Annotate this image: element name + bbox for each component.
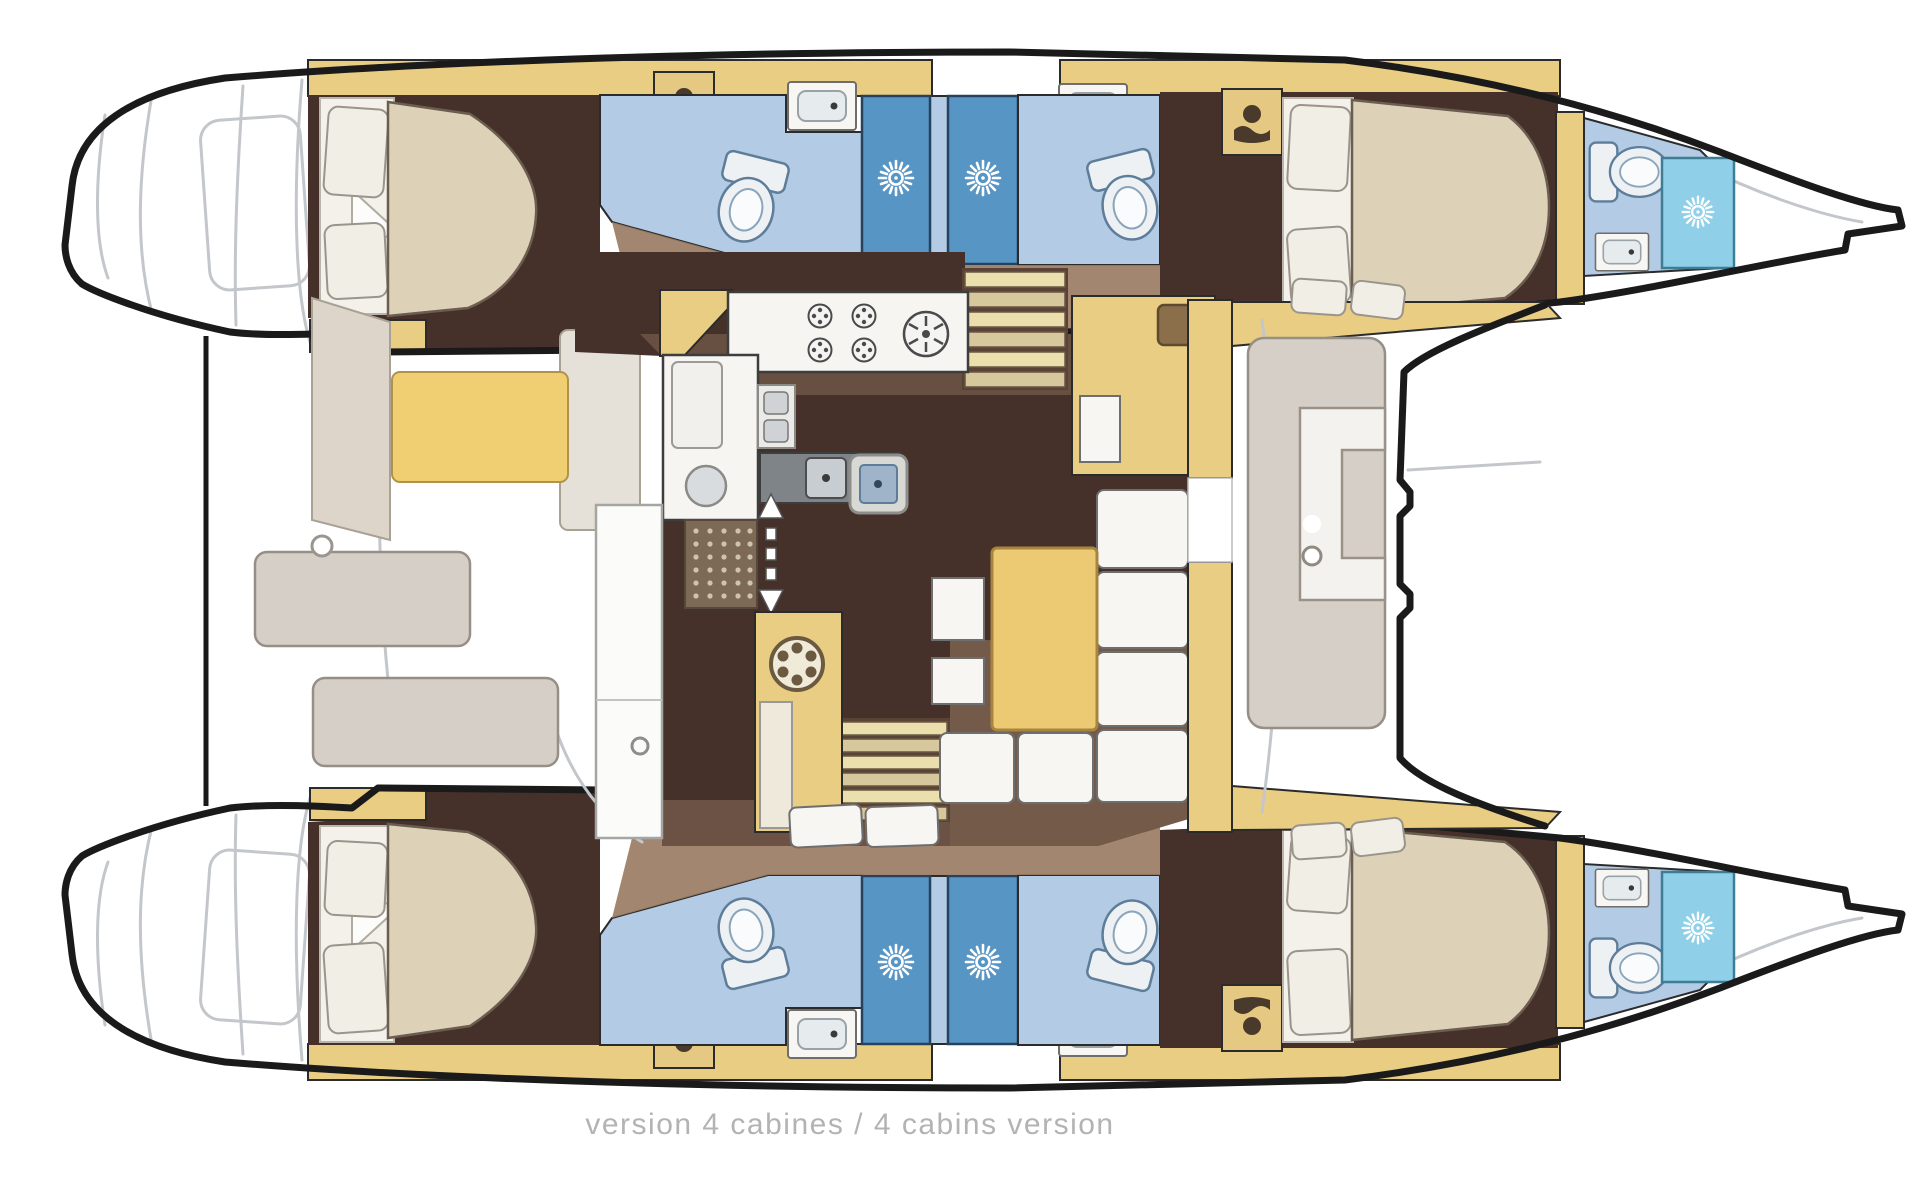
nav-seat [1080,396,1120,462]
floor-grate [685,520,757,608]
plan-caption: version 4 cabines / 4 cabins version [585,1108,1115,1142]
salon-front-door-panel [596,505,662,838]
steps-port-hull [962,268,1068,390]
salon-aft-wall [1188,562,1232,832]
cockpit [1188,278,1560,860]
foredeck-sunpad [255,552,470,646]
large-burner-icon [904,312,948,356]
deck-hatch-ring [312,536,332,556]
cabinet-door [760,702,792,828]
foredeck-bench-stbd [313,678,558,766]
fwd-cockpit-bench [392,372,568,482]
cockpit-edge-outline [1400,305,1545,826]
instrument-panel [850,455,907,513]
foredeck [206,298,642,842]
counter-lid [672,362,722,448]
stool [932,658,984,704]
floor-plan-canvas: version 4 cabines / 4 cabins version [0,0,1920,1185]
fwd-cockpit-side-seat [560,330,640,530]
salon-aft-wall [1188,300,1232,478]
round-sink [686,466,726,506]
salon-table [992,548,1097,730]
washer-cabinet [755,612,842,832]
sliding-door-opening [1188,478,1232,562]
cockpit-bench [1248,338,1385,728]
stool [932,578,984,640]
salon [575,252,1232,848]
fwd-cockpit-backrest [312,298,390,540]
catamaran-floor-plan [0,0,1920,1185]
